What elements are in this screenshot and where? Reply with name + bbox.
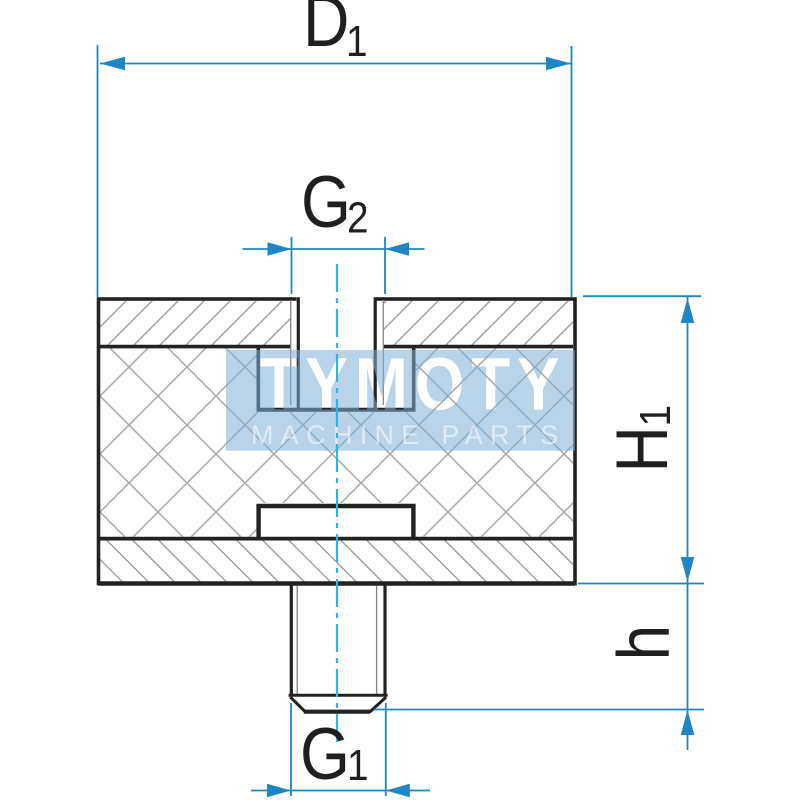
svg-text:h: h	[603, 625, 685, 661]
svg-text:MACHINE PARTS: MACHINE PARTS	[251, 420, 565, 450]
svg-text:2: 2	[347, 192, 369, 242]
svg-text:G: G	[301, 161, 351, 243]
svg-text:G: G	[300, 713, 350, 795]
svg-text:1: 1	[630, 405, 680, 427]
svg-text:H: H	[601, 426, 683, 472]
svg-text:1: 1	[346, 16, 368, 66]
svg-text:1: 1	[347, 740, 369, 790]
svg-text:D: D	[303, 0, 349, 62]
